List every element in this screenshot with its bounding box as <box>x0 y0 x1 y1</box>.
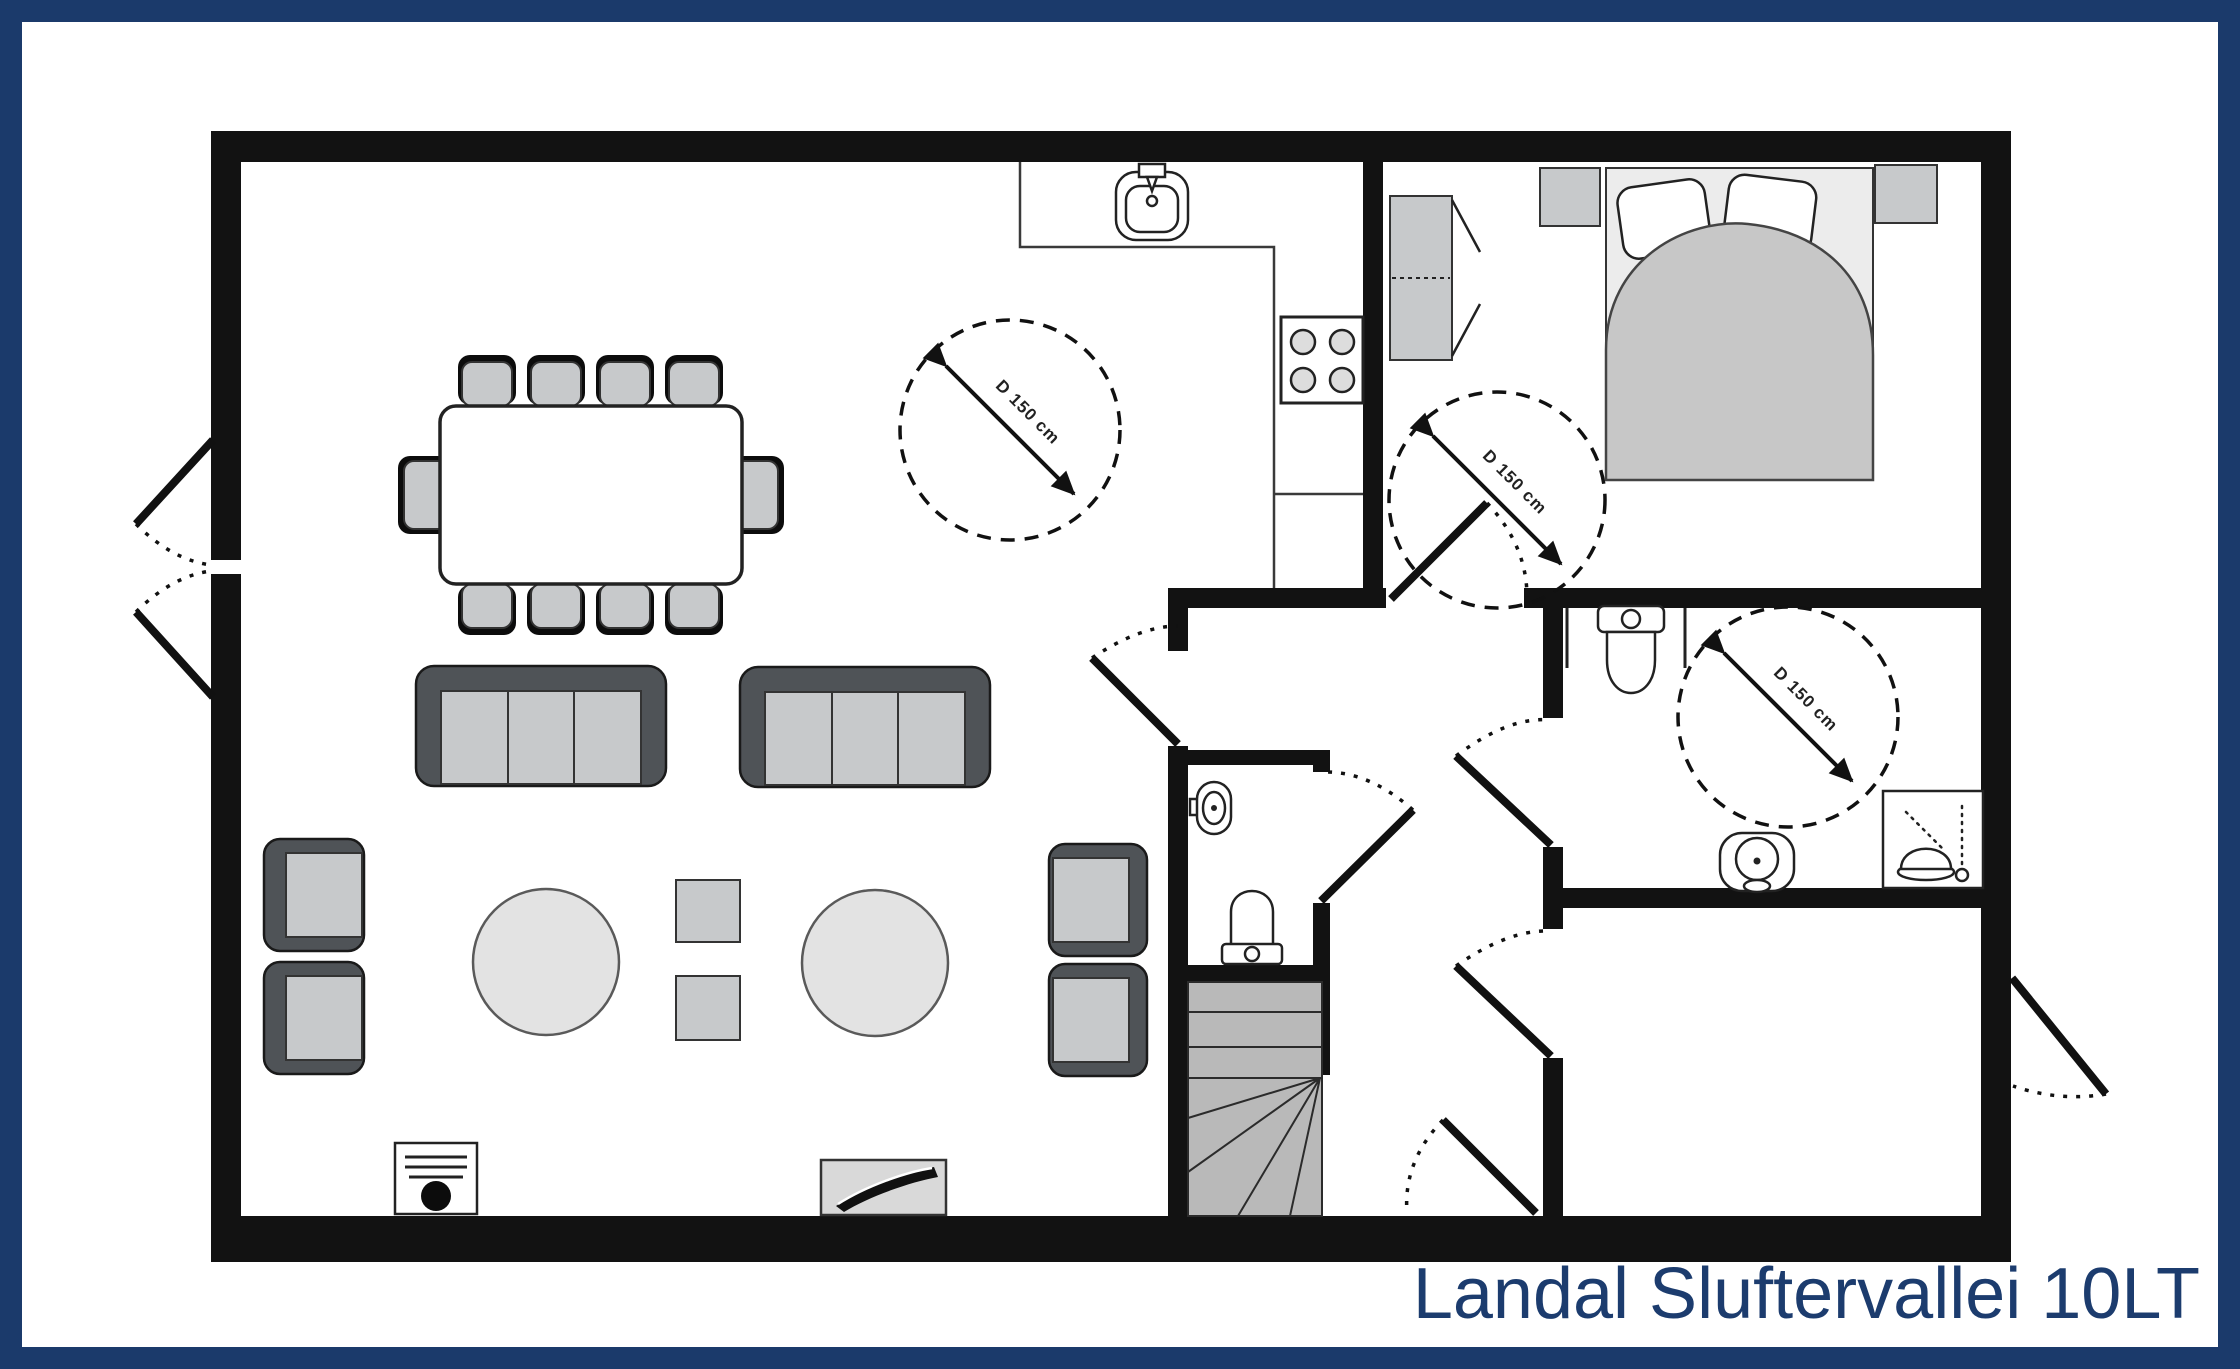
floorplan-page: D 150 cm D 150 cm D 150 cm Landal Slufte… <box>0 0 2240 1369</box>
navy-border-frame <box>0 0 2240 1369</box>
